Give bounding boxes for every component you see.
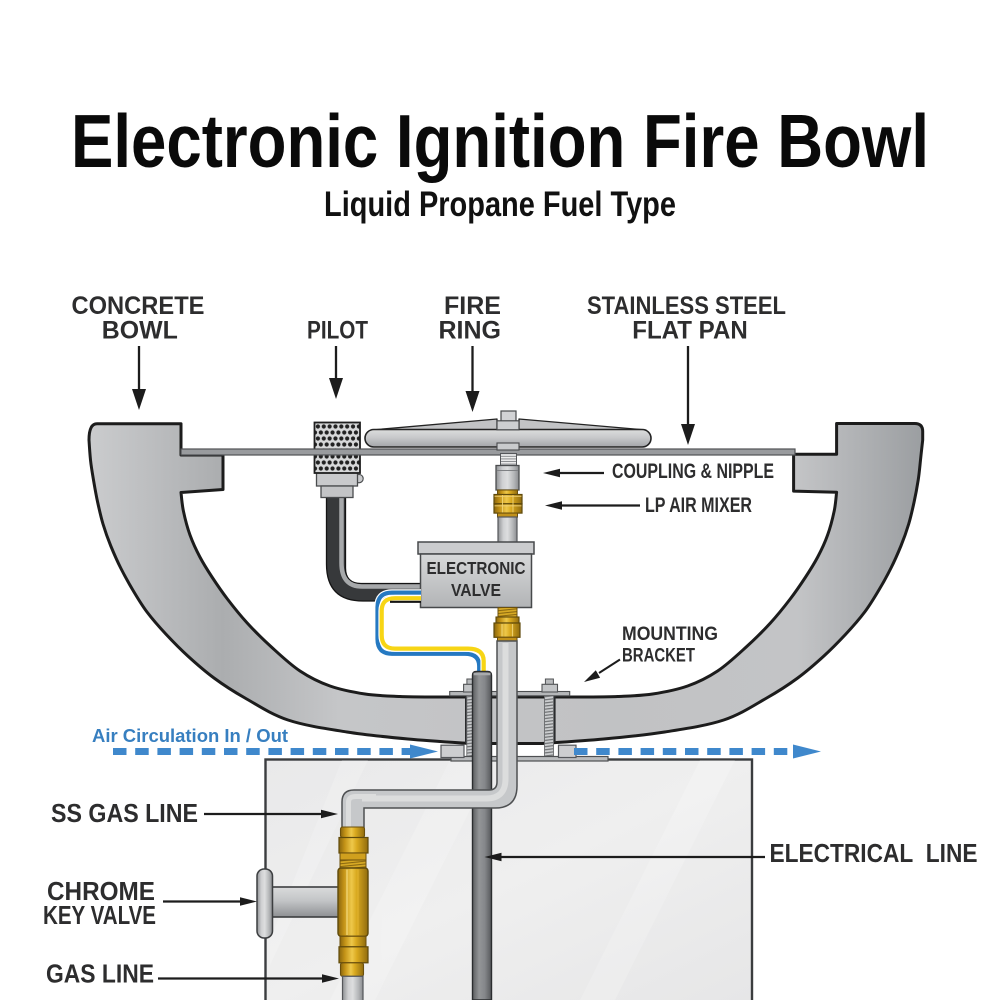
svg-text:PILOT: PILOT xyxy=(307,317,368,345)
svg-text:BRACKET: BRACKET xyxy=(622,646,695,667)
svg-text:KEY VALVE: KEY VALVE xyxy=(43,900,156,930)
svg-text:Electronic Ignition Fire Bowl: Electronic Ignition Fire Bowl xyxy=(71,99,929,183)
svg-text:VALVE: VALVE xyxy=(451,580,501,600)
svg-text:Air Circulation In / Out: Air Circulation In / Out xyxy=(92,725,288,746)
svg-text:Liquid Propane Fuel Type: Liquid Propane Fuel Type xyxy=(324,185,676,224)
svg-text:BOWL: BOWL xyxy=(102,317,178,345)
svg-text:COUPLING & NIPPLE: COUPLING & NIPPLE xyxy=(612,460,774,483)
svg-text:SS GAS LINE: SS GAS LINE xyxy=(51,798,198,828)
svg-text:FLAT PAN: FLAT PAN xyxy=(632,317,748,345)
svg-text:RING: RING xyxy=(438,317,501,345)
svg-text:ELECTRICAL LINE: ELECTRICAL LINE xyxy=(770,838,978,868)
svg-text:MOUNTING: MOUNTING xyxy=(622,624,718,645)
svg-text:LP AIR MIXER: LP AIR MIXER xyxy=(645,494,752,517)
svg-text:ELECTRONIC: ELECTRONIC xyxy=(427,558,526,578)
svg-text:GAS LINE: GAS LINE xyxy=(46,959,154,989)
